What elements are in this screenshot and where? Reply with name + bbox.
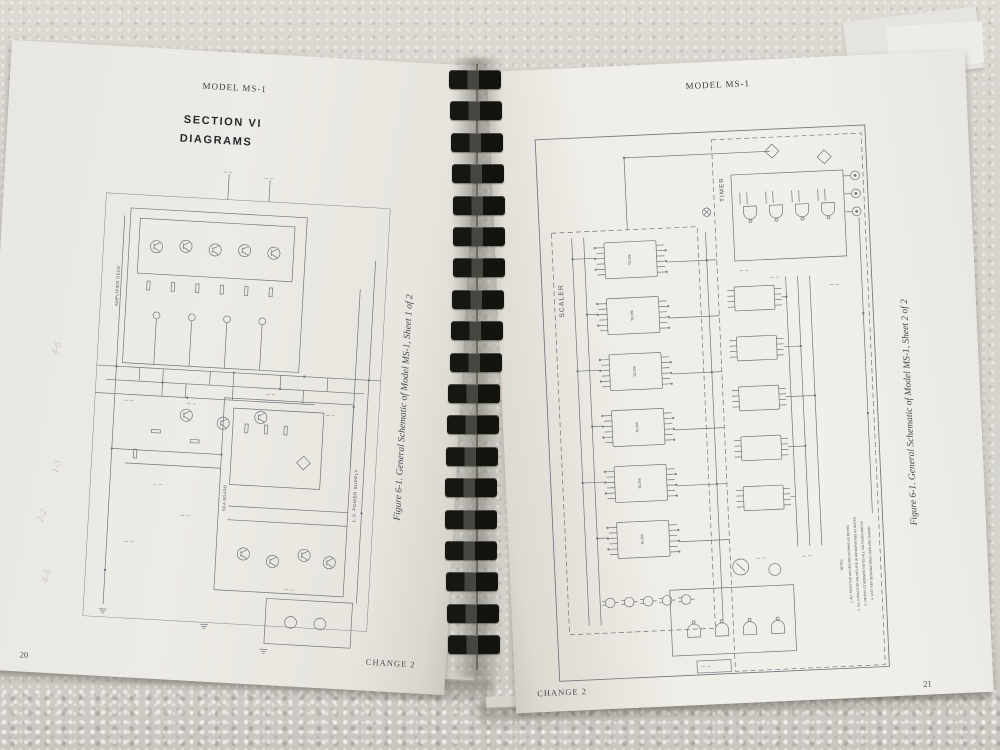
binding-tooth [447, 604, 499, 623]
sca-board-label: SCA BOARD [221, 485, 227, 512]
notes-line: NOTES: [839, 558, 844, 570]
right-page-number: 21 [923, 678, 932, 688]
section-title: SECTION VI [183, 114, 262, 130]
binding-tooth [446, 572, 498, 591]
binding-tooth [445, 510, 497, 529]
ic-label: TIL306 [627, 254, 631, 265]
binding-tooth [445, 478, 497, 497]
ic-label: TIL306 [638, 478, 642, 489]
left-page-header: MODEL MS-1 [160, 78, 310, 96]
schematic-sheet-1: AMPLIFIER DECK SCA BOARD L.V. POWER SUPP… [52, 156, 419, 674]
binding-tooth [453, 258, 505, 277]
pencil-mark: 2-2 [34, 508, 49, 525]
binding-tooth [448, 384, 500, 403]
binding-tooth [452, 164, 504, 183]
binding-tooth [448, 635, 500, 654]
scaler-label: SCALER [558, 284, 567, 318]
right-page[interactable]: MODEL MS-1 SCALER TIMER TIL306 TIL306 TI… [487, 50, 994, 713]
binding-tooth [451, 321, 503, 340]
timer-label: TIMER [719, 177, 726, 202]
section-subtitle: DIAGRAMS [179, 133, 252, 149]
left-page[interactable]: MODEL MS-1 SECTION VI DIAGRAMS [0, 40, 479, 695]
binding-tooth [453, 196, 505, 215]
binding-tooth [453, 227, 505, 246]
notes-line: 4. LAST REF DESIGNATIONS USED ARE SHOWN [867, 526, 874, 600]
binding-tooth [446, 447, 498, 466]
ic-label: TIL306 [633, 366, 637, 377]
ic-label: TIL306 [630, 310, 634, 321]
binding-tooth [451, 133, 503, 152]
figure-caption-sheet-2: Figure 6-1. General Schematic of Model M… [897, 247, 928, 577]
ic-label: TIL306 [635, 422, 639, 433]
binding-tooth [450, 353, 502, 372]
binding-tooth [445, 541, 497, 560]
binding-tooth [452, 290, 504, 309]
right-page-header: MODEL MS-1 [653, 77, 783, 93]
pencil-mark: 4-6 [49, 340, 64, 356]
ic-label: TIL306 [640, 534, 644, 545]
binding-tooth [449, 70, 501, 89]
right-change-notice: CHANGE 2 [537, 686, 587, 698]
binding-tooth [447, 415, 499, 434]
pencil-mark: 4-5 [40, 568, 54, 584]
notes-line: 1. ALL RESISTOR VALUES ARE IN OHMS AS NO… [846, 524, 854, 603]
lv-power-supply-label: L.V. POWER SUPPLY [351, 469, 359, 522]
photo-of-open-manual: MODEL MS-1 SECTION VI DIAGRAMS [0, 0, 1000, 750]
binding-tooth [450, 101, 502, 120]
comb-binding [451, 70, 505, 670]
left-page-number: 20 [19, 649, 28, 659]
schematic-sheet-2: SCALER TIMER TIL306 TIL306 TIL306 TIL306… [523, 112, 900, 697]
